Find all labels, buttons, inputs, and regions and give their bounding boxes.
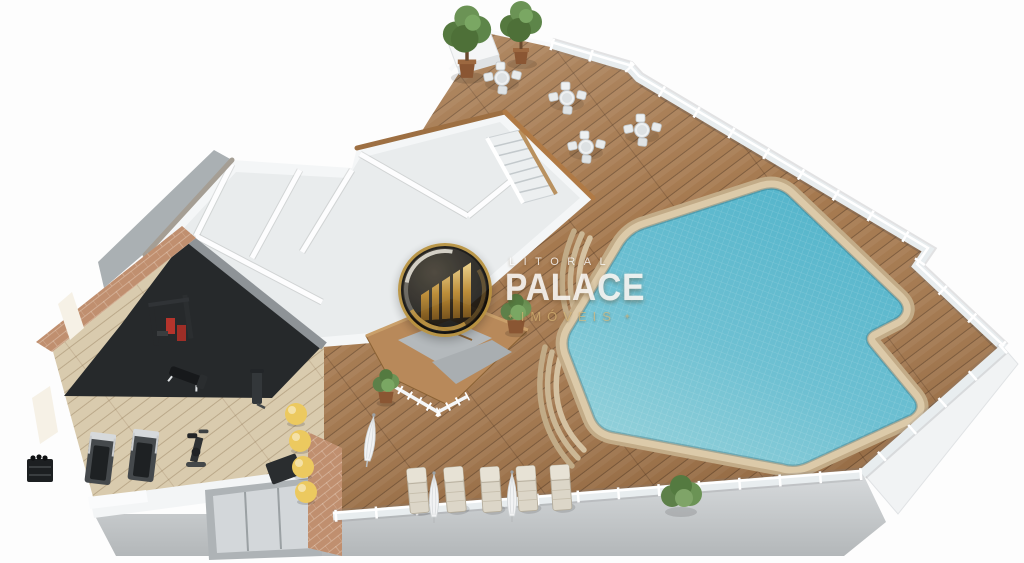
furniture-ball [285, 403, 307, 427]
gym-window-lower [32, 386, 58, 444]
furniture-ball [292, 456, 314, 480]
furniture-rack [27, 454, 53, 482]
floorplan-page: LITORAL PALACE ✦ IMÓVEIS ✦ [0, 0, 1024, 563]
furniture-ball [289, 430, 311, 454]
floorplan-render [0, 0, 1024, 563]
furniture-ball [295, 481, 317, 505]
